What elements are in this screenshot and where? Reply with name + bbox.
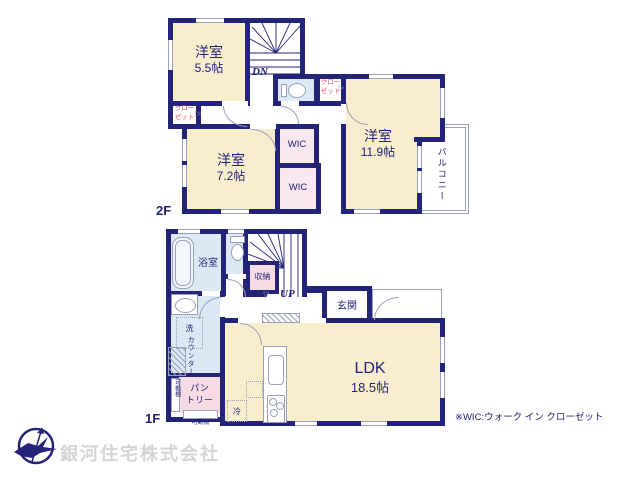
- window: [440, 88, 445, 118]
- stairs-dn-label: DN: [252, 65, 268, 79]
- room-name: 洋室: [364, 127, 392, 145]
- window: [295, 421, 317, 426]
- room-size: 7.2帖: [217, 169, 246, 185]
- bathtub-icon: [172, 237, 194, 289]
- toilet-bowl-icon-2f: [288, 83, 306, 98]
- laundry-label: 洗: [186, 324, 194, 333]
- door-gap: [202, 291, 220, 296]
- window: [361, 421, 387, 426]
- stairs-up-label: UP: [280, 287, 295, 301]
- window: [354, 209, 380, 214]
- window: [440, 372, 445, 398]
- shelf-side-label: 可動棚: [172, 379, 180, 397]
- window: [369, 74, 393, 79]
- fridge-label: 冷: [233, 407, 241, 416]
- window: [182, 139, 187, 161]
- window: [168, 40, 173, 70]
- window: [196, 18, 224, 23]
- room-size: 18.5帖: [351, 380, 389, 397]
- room-2f-55-label: 洋室 5.5帖: [176, 40, 242, 80]
- balcony-label: バルコニー: [435, 140, 447, 208]
- pantry-label-2: トリー: [186, 395, 213, 407]
- company-logo: [12, 418, 60, 474]
- kitchen-counter: [263, 346, 287, 423]
- floor-1f-label: 1F: [145, 411, 160, 428]
- table-space: [246, 381, 263, 398]
- window: [182, 165, 187, 187]
- room-name: 洋室: [195, 43, 223, 61]
- toilet-bowl-icon-1f: [231, 244, 244, 261]
- counter-label: カウンター: [186, 333, 195, 379]
- window: [228, 229, 244, 234]
- room-name: LDK: [354, 359, 385, 380]
- bathroom-label: 浴室: [193, 257, 223, 270]
- room-size: 5.5帖: [195, 61, 224, 77]
- closet-door-marker: ▷: [195, 110, 201, 118]
- window: [221, 209, 249, 214]
- window: [440, 337, 445, 363]
- door-arc: [281, 106, 299, 124]
- balcony-door: [417, 171, 422, 193]
- room-name: 洋室: [217, 151, 245, 169]
- ldk-label: LDK 18.5帖: [325, 356, 415, 400]
- entrance-label: 玄関: [332, 300, 362, 313]
- counter-surface: [168, 347, 186, 376]
- stove-icon: [267, 395, 285, 423]
- wic-upper-label: WIC: [277, 139, 317, 151]
- wic-note: ※WIC:ウォーク イン クローゼット: [455, 412, 603, 424]
- floorplan-canvas: バルコニー: [0, 0, 640, 480]
- wic-lower-label: WIC: [277, 182, 319, 194]
- pantry-label-1: パン: [190, 383, 208, 395]
- wall-segment: [302, 286, 327, 293]
- toilet-icon-1f: [230, 236, 245, 243]
- shelf-bottom-label: 可動棚: [191, 420, 209, 426]
- door-gap: [341, 104, 346, 124]
- shelf-side: 可動棚: [171, 378, 180, 412]
- room-2f-72-label: 洋室 7.2帖: [190, 148, 272, 188]
- fridge-space: 冷: [227, 400, 247, 422]
- washbasin-icon: [171, 294, 198, 315]
- room-2f-119-label: 洋室 11.9帖: [340, 124, 416, 164]
- shelf-bottom: 可動棚: [183, 410, 218, 419]
- company-name: 銀河住宅株式会社: [60, 440, 220, 466]
- kitchen-sink-icon: [268, 355, 284, 385]
- floor-2f-label: 2F: [156, 203, 171, 220]
- balcony-door: [417, 146, 422, 168]
- pantry: パン トリー: [179, 377, 220, 413]
- window: [178, 229, 200, 234]
- closet-door-marker: ▷: [338, 84, 344, 92]
- toilet-icon-2f: [281, 84, 287, 97]
- room-size: 11.9帖: [361, 145, 395, 161]
- entry-step: [262, 313, 300, 323]
- storage-label: 収納: [248, 272, 277, 282]
- storage-door-marker: ▽: [263, 291, 269, 299]
